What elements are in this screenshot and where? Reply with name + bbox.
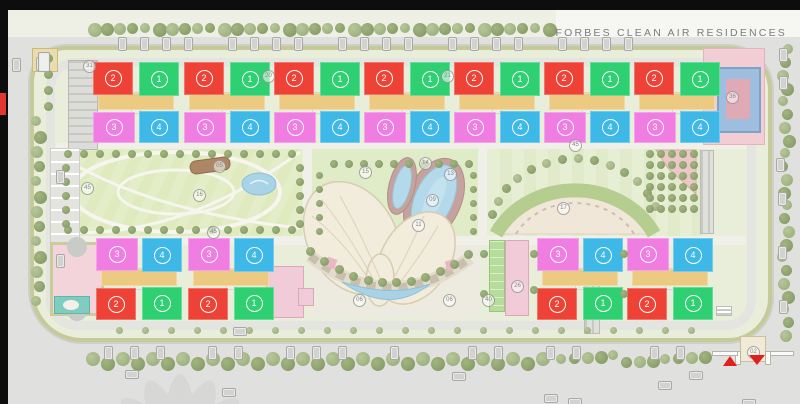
tree-icon xyxy=(144,150,152,158)
building-cluster-b2: 3421 xyxy=(537,238,623,320)
tree-icon xyxy=(450,160,458,168)
map-label: 31 xyxy=(83,60,96,73)
tree-icon xyxy=(272,150,280,158)
tree-icon xyxy=(128,226,136,234)
tree-icon xyxy=(179,23,191,35)
map-label: 26 xyxy=(511,280,524,293)
tree-icon xyxy=(34,161,45,172)
tree-icon xyxy=(31,146,43,158)
building-number: 3 xyxy=(197,119,214,136)
map-label: 06 xyxy=(443,294,456,307)
tree-icon xyxy=(309,23,321,35)
tree-icon xyxy=(657,150,665,158)
tree-icon xyxy=(34,131,47,144)
tree-icon xyxy=(86,352,100,366)
building-number: 1 xyxy=(422,71,439,88)
building-block-green[interactable]: 1 xyxy=(673,287,713,320)
tree-icon xyxy=(783,317,794,328)
building-block-red[interactable]: 2 xyxy=(274,62,314,95)
tree-icon xyxy=(375,160,383,168)
tree-icon xyxy=(558,327,565,334)
tree-icon xyxy=(266,352,280,366)
tree-icon xyxy=(668,205,676,213)
building-block-cyan[interactable]: 4 xyxy=(139,111,179,143)
building-number: 1 xyxy=(692,71,709,88)
tree-icon xyxy=(160,150,168,158)
map-label: 45 xyxy=(569,139,582,152)
tree-icon xyxy=(668,172,676,180)
tree-icon xyxy=(506,352,520,366)
building-block-cyan[interactable]: 4 xyxy=(590,111,630,143)
map-label: 09 xyxy=(426,194,439,207)
tree-icon xyxy=(646,194,654,202)
tree-icon xyxy=(657,183,665,191)
tree-icon xyxy=(783,226,795,238)
car-icon xyxy=(162,37,171,51)
building-block-red[interactable]: 2 xyxy=(96,288,136,320)
map-label: 06 xyxy=(353,294,366,307)
tree-icon xyxy=(686,352,698,364)
tree-icon xyxy=(374,23,386,35)
tree-icon xyxy=(478,23,492,37)
car-icon xyxy=(12,58,21,72)
car-icon xyxy=(360,37,369,51)
tree-icon xyxy=(595,351,608,364)
tree-icon xyxy=(657,205,665,213)
tree-icon xyxy=(530,286,538,294)
tree-icon xyxy=(778,96,788,106)
car-icon xyxy=(658,381,672,390)
building-cluster-b3: 3421 xyxy=(627,238,713,320)
building-number: 4 xyxy=(332,119,349,136)
building-block-green[interactable]: 1 xyxy=(142,287,182,320)
tree-icon xyxy=(657,194,665,202)
tree-icon xyxy=(646,205,654,213)
tree-icon xyxy=(364,276,373,285)
tree-icon xyxy=(454,327,461,334)
tree-icon xyxy=(494,197,503,206)
building-block-pink[interactable]: 3 xyxy=(184,112,226,143)
building-cluster-b0: 3421 xyxy=(96,238,182,320)
building-block-pink[interactable]: 3 xyxy=(364,112,406,143)
page-title: FORBES CLEAN AIR RESIDENCES xyxy=(555,27,787,39)
car-icon xyxy=(222,388,236,397)
building-block-green[interactable]: 1 xyxy=(500,62,540,96)
building-number: 3 xyxy=(287,119,304,136)
tree-icon xyxy=(191,357,205,371)
tree-icon xyxy=(31,266,43,278)
building-block-red[interactable]: 2 xyxy=(537,288,577,320)
building-block-pink[interactable]: 3 xyxy=(274,112,316,143)
car-icon xyxy=(338,37,347,51)
building-block-green[interactable]: 1 xyxy=(234,287,274,320)
tree-icon xyxy=(428,327,435,334)
crosswalk xyxy=(716,306,732,316)
tree-icon xyxy=(96,226,104,234)
tree-icon xyxy=(31,206,43,218)
building-number: 2 xyxy=(286,70,303,87)
map-label: 15 xyxy=(359,166,372,179)
tree-icon xyxy=(690,205,698,213)
car-icon xyxy=(492,37,501,51)
tree-icon xyxy=(690,150,698,158)
tree-icon xyxy=(621,357,632,368)
tree-icon xyxy=(34,191,47,204)
car-icon xyxy=(125,370,139,379)
building-block-red[interactable]: 2 xyxy=(364,62,404,95)
car-icon xyxy=(452,372,466,381)
building-number: 4 xyxy=(692,119,709,136)
map-label: 16 xyxy=(193,189,206,202)
tree-icon xyxy=(64,150,72,158)
building-block-red[interactable]: 2 xyxy=(188,288,228,320)
building-number: 4 xyxy=(602,119,619,136)
tree-icon xyxy=(80,226,88,234)
tree-icon xyxy=(296,220,304,228)
tree-icon xyxy=(296,23,309,36)
tree-icon xyxy=(679,205,687,213)
tree-icon xyxy=(521,357,535,371)
building-number: 2 xyxy=(639,296,656,313)
building-number: 2 xyxy=(196,70,213,87)
car-icon xyxy=(568,398,582,404)
tree-icon xyxy=(387,23,398,34)
tree-icon xyxy=(34,221,45,232)
tree-icon xyxy=(782,109,793,120)
building-block-pink[interactable]: 3 xyxy=(96,238,138,271)
tree-icon xyxy=(660,354,670,364)
car-icon xyxy=(286,346,295,360)
car-icon xyxy=(580,37,589,51)
building-number: 1 xyxy=(332,71,349,88)
building-block-cyan[interactable]: 4 xyxy=(673,238,713,272)
tree-icon xyxy=(116,352,130,366)
tree-icon xyxy=(350,327,357,334)
building-number: 1 xyxy=(154,295,171,312)
tree-icon xyxy=(270,23,280,33)
tree-icon xyxy=(31,236,41,246)
tree-icon xyxy=(221,357,235,371)
tree-icon xyxy=(778,278,790,290)
building-number: 2 xyxy=(646,70,663,87)
car-icon xyxy=(689,371,703,380)
tree-icon xyxy=(88,23,102,37)
building-block-cyan[interactable]: 4 xyxy=(230,111,270,143)
tree-icon xyxy=(316,186,323,193)
tree-icon xyxy=(96,150,104,158)
tree-icon xyxy=(620,290,628,298)
tree-icon xyxy=(620,168,629,177)
tree-icon xyxy=(513,174,522,183)
building-block-green[interactable]: 1 xyxy=(320,62,360,96)
tennis-court[interactable] xyxy=(717,67,761,133)
building-number: 4 xyxy=(242,119,259,136)
building-number: 3 xyxy=(640,246,657,263)
tree-icon xyxy=(62,220,70,228)
tree-icon xyxy=(450,260,459,269)
car-icon xyxy=(56,254,65,268)
building-number: 3 xyxy=(377,119,394,136)
car-icon xyxy=(233,327,247,336)
car-icon xyxy=(382,37,391,51)
car-icon xyxy=(130,346,139,360)
car-icon xyxy=(776,158,785,172)
tree-icon xyxy=(112,150,120,158)
tree-icon xyxy=(679,161,687,169)
building-block-red[interactable]: 2 xyxy=(184,62,224,95)
tree-icon xyxy=(296,192,304,200)
tree-icon xyxy=(426,23,439,36)
left-edge-marker xyxy=(0,93,6,115)
building-number: 4 xyxy=(151,119,168,136)
tree-icon xyxy=(192,226,200,234)
car-icon xyxy=(184,37,193,51)
car-icon xyxy=(546,346,555,360)
tree-icon xyxy=(44,86,53,95)
tree-icon xyxy=(436,267,445,276)
map-label: 20 xyxy=(262,70,275,83)
car-icon xyxy=(404,37,413,51)
tree-icon xyxy=(780,148,790,158)
building-block-red[interactable]: 2 xyxy=(454,62,494,95)
car-icon xyxy=(140,37,149,51)
entrance-arrow-down-icon xyxy=(749,355,765,365)
frame-top xyxy=(0,0,800,10)
tree-icon xyxy=(34,251,47,264)
tree-icon xyxy=(688,327,695,334)
building-block-pink[interactable]: 3 xyxy=(627,238,669,271)
tree-icon xyxy=(62,192,70,200)
building-number: 1 xyxy=(595,295,612,312)
tree-icon xyxy=(80,150,88,158)
building-block-cyan[interactable]: 4 xyxy=(234,238,274,272)
tree-icon xyxy=(376,327,383,334)
tree-icon xyxy=(517,23,528,34)
tree-icon xyxy=(610,327,617,334)
building-cluster-t1: 2134 xyxy=(184,62,270,144)
building-block-pink[interactable]: 3 xyxy=(454,112,496,143)
tree-icon xyxy=(166,23,179,36)
tree-icon xyxy=(416,352,430,366)
tree-icon xyxy=(407,277,416,286)
tree-icon xyxy=(316,172,323,179)
car-icon xyxy=(338,346,347,360)
map-label: 13 xyxy=(444,168,457,181)
tree-icon xyxy=(679,183,687,191)
car-icon xyxy=(234,346,243,360)
tree-icon xyxy=(431,357,445,371)
tree-icon xyxy=(690,161,698,169)
tree-icon xyxy=(256,150,264,158)
car-icon xyxy=(779,48,788,62)
map-label: 45 xyxy=(81,182,94,195)
tree-icon xyxy=(272,226,280,234)
tree-icon xyxy=(348,23,362,37)
tree-icon xyxy=(296,164,304,172)
tree-icon xyxy=(506,327,513,334)
tree-icon xyxy=(779,213,790,224)
building-block-green[interactable]: 1 xyxy=(680,62,720,96)
tree-icon xyxy=(176,352,190,366)
tree-icon xyxy=(296,206,304,214)
tree-icon xyxy=(244,23,256,35)
tree-icon xyxy=(400,23,410,33)
tree-icon xyxy=(582,352,594,364)
tree-icon xyxy=(390,160,398,168)
building-block-red[interactable]: 2 xyxy=(544,62,584,95)
tree-icon xyxy=(176,150,184,158)
kids-pool[interactable] xyxy=(54,296,90,314)
tree-icon xyxy=(530,23,540,33)
tree-icon xyxy=(356,352,370,366)
building-block-cyan[interactable]: 4 xyxy=(410,111,450,143)
tree-icon xyxy=(690,172,698,180)
tree-icon xyxy=(542,159,551,168)
tree-icon xyxy=(361,23,374,36)
building-block-cyan[interactable]: 4 xyxy=(680,111,720,143)
car-icon xyxy=(56,170,65,184)
building-number: 3 xyxy=(550,246,567,263)
tree-icon xyxy=(465,23,475,33)
car-icon xyxy=(544,394,558,403)
tree-icon xyxy=(127,23,138,34)
tree-icon xyxy=(491,23,504,36)
car-icon xyxy=(514,37,523,51)
tree-icon xyxy=(160,226,168,234)
building-number: 3 xyxy=(106,119,123,136)
car-icon xyxy=(558,37,567,51)
tree-icon xyxy=(208,150,216,158)
tree-icon xyxy=(34,281,45,292)
tree-icon xyxy=(62,206,70,214)
entrance-arrow-up-icon xyxy=(723,356,737,366)
tree-icon xyxy=(634,356,646,368)
tree-icon xyxy=(668,183,676,191)
building-block-cyan[interactable]: 4 xyxy=(583,238,623,272)
tree-icon xyxy=(31,116,41,126)
car-icon xyxy=(448,37,457,51)
building-block-green[interactable]: 1 xyxy=(590,62,630,96)
building-block-green[interactable]: 1 xyxy=(583,287,623,320)
tree-icon xyxy=(240,150,248,158)
building-number: 2 xyxy=(108,296,125,313)
tree-icon xyxy=(480,250,488,258)
building-block-pink[interactable]: 3 xyxy=(93,112,135,143)
tree-icon xyxy=(646,161,654,169)
tree-icon xyxy=(168,327,175,334)
tree-icon xyxy=(298,327,305,334)
tree-icon xyxy=(690,194,698,202)
building-block-cyan[interactable]: 4 xyxy=(320,111,360,143)
building-block-green[interactable]: 1 xyxy=(139,62,179,96)
building-block-pink[interactable]: 3 xyxy=(188,238,230,271)
tree-icon xyxy=(527,165,536,174)
building-number: 2 xyxy=(466,70,483,87)
tree-icon xyxy=(646,172,654,180)
building-number: 3 xyxy=(557,119,574,136)
building-number: 2 xyxy=(556,70,573,87)
building-block-cyan[interactable]: 4 xyxy=(142,238,182,272)
tree-icon xyxy=(322,23,333,34)
building-block-red[interactable]: 2 xyxy=(93,62,133,95)
tree-icon xyxy=(574,154,583,163)
tree-icon xyxy=(435,160,443,168)
tree-icon xyxy=(646,150,654,158)
tree-icon xyxy=(176,226,184,234)
tree-icon xyxy=(224,226,232,234)
west-park-lawn xyxy=(58,148,302,236)
tree-icon xyxy=(371,357,385,371)
tree-icon xyxy=(699,351,712,364)
tree-icon xyxy=(256,226,264,234)
map-label: 11 xyxy=(412,219,425,232)
tree-icon xyxy=(324,327,331,334)
tree-icon xyxy=(662,327,669,334)
building-block-pink[interactable]: 3 xyxy=(544,112,586,143)
tree-icon xyxy=(657,172,665,180)
building-number: 2 xyxy=(200,296,217,313)
tree-icon xyxy=(288,150,296,158)
tree-icon xyxy=(316,200,323,207)
tree-icon xyxy=(413,23,427,37)
building-block-red[interactable]: 2 xyxy=(627,288,667,320)
tree-icon xyxy=(668,150,676,158)
tree-icon xyxy=(153,23,167,37)
tree-icon xyxy=(330,160,338,168)
tree-icon xyxy=(144,226,152,234)
tree-icon xyxy=(112,226,120,234)
building-block-pink[interactable]: 3 xyxy=(634,112,676,143)
building-cluster-t2: 2134 xyxy=(274,62,360,144)
car-icon xyxy=(602,37,611,51)
gate-fence xyxy=(770,351,794,356)
tree-icon xyxy=(504,23,516,35)
car-icon xyxy=(312,346,321,360)
map-label: 17 xyxy=(557,202,570,215)
building-number: 2 xyxy=(376,70,393,87)
tree-icon xyxy=(240,226,248,234)
tree-icon xyxy=(452,23,463,34)
tree-icon xyxy=(316,228,323,235)
tree-icon xyxy=(781,174,793,186)
building-block-red[interactable]: 2 xyxy=(634,62,674,95)
building-number: 3 xyxy=(109,246,126,263)
tree-icon xyxy=(335,23,345,33)
tree-icon xyxy=(633,177,642,186)
building-number: 3 xyxy=(467,119,484,136)
tree-icon xyxy=(690,183,698,191)
building-number: 4 xyxy=(246,247,263,264)
tree-icon xyxy=(608,350,618,360)
car-icon xyxy=(742,399,756,404)
building-number: 2 xyxy=(105,70,122,87)
building-number: 1 xyxy=(602,71,619,88)
tree-icon xyxy=(405,160,413,168)
multipurpose-court[interactable] xyxy=(505,240,529,316)
tree-icon xyxy=(679,172,687,180)
tree-icon xyxy=(620,250,628,258)
car-icon xyxy=(390,346,399,360)
tree-icon xyxy=(272,327,279,334)
building-block-pink[interactable]: 3 xyxy=(537,238,579,271)
building-block-cyan[interactable]: 4 xyxy=(500,111,540,143)
tree-icon xyxy=(780,330,792,342)
tree-icon xyxy=(101,23,114,36)
tree-icon xyxy=(251,357,265,371)
building-cluster-t3: 2134 xyxy=(364,62,450,144)
tree-icon xyxy=(470,214,477,221)
tree-icon xyxy=(205,23,215,33)
